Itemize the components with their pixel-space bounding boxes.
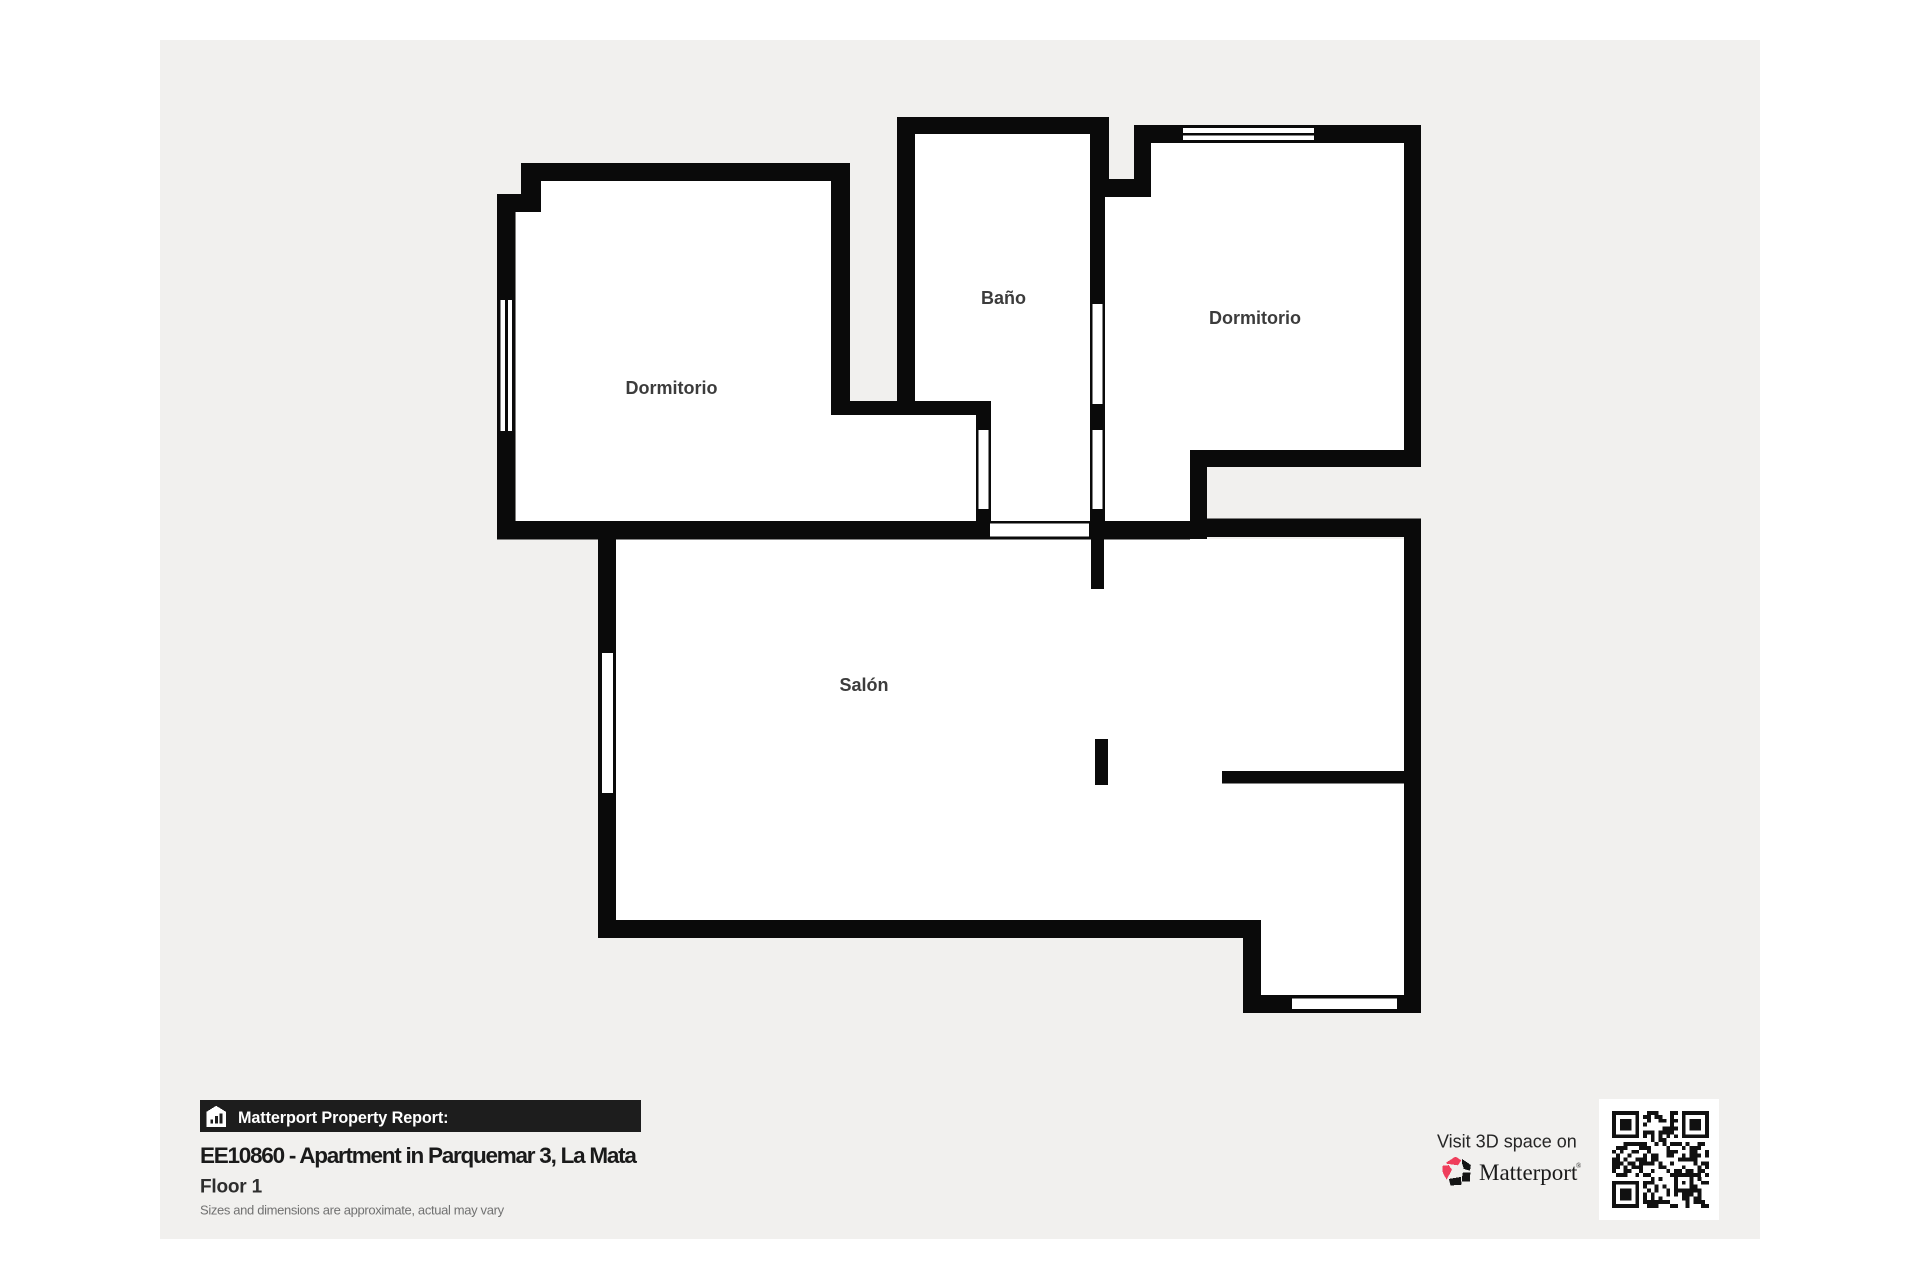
svg-text:Matterport: Matterport [1479,1160,1578,1185]
svg-text:Baño: Baño [981,288,1026,308]
svg-text:Dormitorio: Dormitorio [1209,308,1301,328]
svg-text:Floor 1: Floor 1 [200,1177,263,1198]
svg-text:Matterport Property Report:: Matterport Property Report: [238,1109,448,1127]
svg-text:®: ® [1576,1162,1582,1170]
svg-text:Salón: Salón [839,675,888,695]
svg-text:EE10860 - Apartment in Parquem: EE10860 - Apartment in Parquemar 3, La M… [200,1143,637,1168]
svg-text:Visit 3D space on: Visit 3D space on [1437,1132,1577,1152]
svg-text:Sizes and dimensions are appro: Sizes and dimensions are approximate, ac… [200,1203,505,1218]
svg-text:Dormitorio: Dormitorio [626,378,718,398]
